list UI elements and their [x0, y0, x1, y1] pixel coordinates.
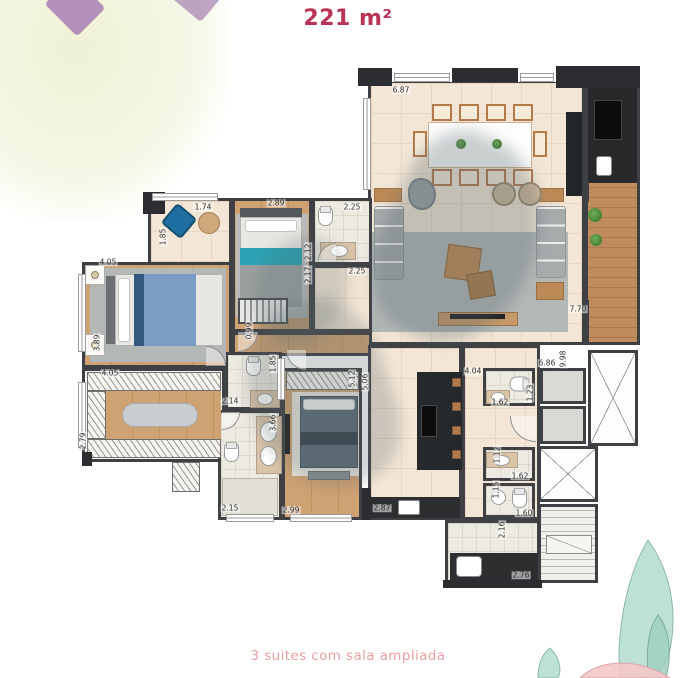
- dimension-label: 5.12: [348, 370, 356, 389]
- dimension-label: 2.16: [498, 521, 506, 540]
- pillar: [358, 68, 392, 86]
- dimension-label: 6.87: [392, 86, 411, 94]
- dimension-label: 7.70: [569, 305, 588, 313]
- window: [520, 73, 554, 82]
- bed2-headboard: [240, 208, 302, 217]
- dining-chair: [432, 169, 452, 186]
- bed2-teal-runner: [240, 248, 302, 265]
- elevator-lobby-2: [540, 406, 586, 444]
- dimension-label: 4.05: [101, 369, 120, 377]
- dimension-label: 2.12: [304, 243, 312, 262]
- shaft: [588, 350, 638, 446]
- island-stool: [452, 378, 461, 387]
- pillar: [452, 68, 518, 82]
- dimension-label: 2.14: [221, 397, 240, 405]
- dining-chair: [459, 169, 479, 186]
- island-stool: [452, 450, 461, 459]
- dining-chair: [432, 104, 452, 121]
- closet-hangers-bottom: [87, 439, 221, 458]
- window: [226, 514, 274, 522]
- window: [277, 358, 285, 400]
- hatched-duct: [172, 462, 200, 492]
- master-bed-pillows: [118, 278, 130, 342]
- side-table: [536, 282, 564, 300]
- dimension-label: 0.99: [245, 322, 253, 341]
- suite-bed-pillows: [303, 399, 355, 410]
- toilet: [318, 206, 333, 226]
- pillar: [362, 488, 371, 520]
- dimension-label: 1.85: [159, 228, 167, 247]
- bed2-pillow: [245, 220, 297, 232]
- dimension-label: 5.06: [361, 373, 369, 392]
- dimension-label: 2.17: [304, 266, 312, 285]
- toilet: [224, 442, 239, 462]
- dimension-label: 1.60: [515, 509, 534, 517]
- dining-chair: [413, 131, 427, 157]
- coffee-table: [466, 270, 496, 300]
- lounge-chair: [408, 178, 436, 210]
- dimension-label: 9.98: [559, 350, 567, 369]
- wall-stub: [585, 182, 589, 202]
- grill: [594, 100, 622, 140]
- dimension-label: 2.25: [348, 267, 367, 275]
- dimension-label: 2.25: [343, 203, 362, 211]
- closet-hangers-left: [87, 391, 106, 439]
- armchair: [518, 182, 542, 206]
- island-stool: [452, 426, 461, 435]
- stairs: [538, 504, 598, 583]
- dining-chair: [459, 104, 479, 121]
- page-title: 221 m²: [0, 6, 696, 31]
- sofa-right: [536, 206, 566, 278]
- cooktop: [421, 405, 437, 437]
- dimension-label: 3.89: [93, 334, 101, 353]
- dimension-label: 2.79: [79, 432, 87, 451]
- dimension-label: 3.66: [269, 414, 277, 433]
- dimension-label: 2.87: [373, 504, 392, 512]
- pillar: [556, 66, 640, 88]
- window: [394, 73, 450, 82]
- pillar: [443, 580, 542, 588]
- kitchen-sink: [398, 500, 420, 515]
- dimension-label: 2.15: [221, 504, 240, 512]
- dining-chair: [486, 104, 506, 121]
- dining-chair: [513, 104, 533, 121]
- balcony-plant: [588, 208, 602, 222]
- dimension-label: 4.04: [464, 367, 483, 375]
- master-bed-headboard: [106, 276, 115, 344]
- tv: [450, 314, 505, 319]
- dimension-label: 6.86: [538, 359, 557, 367]
- table-plant: [456, 139, 466, 149]
- sofa-left: [374, 206, 404, 280]
- floor-plan-page: 221 m² 3 suites com sala ampliada: [0, 0, 696, 678]
- closet-rug: [122, 403, 198, 427]
- dimension-label: 1.23: [526, 384, 534, 403]
- dimension-label: 2.99: [282, 506, 301, 514]
- sink: [260, 446, 277, 466]
- laundry-sink: [456, 556, 482, 577]
- grill-sink: [596, 156, 612, 176]
- page-caption: 3 suites com sala ampliada: [0, 648, 696, 664]
- dimension-label: 1.12: [493, 446, 501, 465]
- dimension-label: 1.15: [492, 481, 500, 500]
- balcony-plant: [590, 234, 602, 246]
- dimension-label: 4.05: [99, 258, 118, 266]
- dimension-label: 1.62: [491, 398, 510, 406]
- suite-bed-throw: [300, 432, 358, 445]
- nightstand-lamp: [91, 271, 99, 279]
- side-table: [374, 188, 402, 202]
- door-arc: [286, 350, 306, 370]
- toilet: [512, 488, 527, 508]
- island-stool: [452, 402, 461, 411]
- window: [152, 193, 218, 201]
- elevator: [538, 446, 598, 502]
- dimension-label: 2.76: [512, 571, 531, 579]
- dimension-label: 1.62: [511, 472, 530, 480]
- crib: [238, 298, 288, 324]
- pillar: [82, 452, 92, 466]
- table-plant: [492, 139, 502, 149]
- dining-chair: [533, 131, 547, 157]
- nook-table: [198, 212, 220, 234]
- elevator-lobby-1: [540, 368, 586, 404]
- window: [290, 514, 352, 522]
- master-bed-blanket: [134, 274, 196, 346]
- tv-panel: [566, 112, 582, 196]
- watercolor-top-left: [0, 0, 230, 220]
- armchair: [492, 182, 516, 206]
- window: [363, 98, 371, 190]
- window: [78, 274, 86, 352]
- stairs-landing: [546, 535, 591, 555]
- dimension-label: 1.85: [269, 355, 277, 374]
- sink: [257, 393, 273, 405]
- toilet: [246, 356, 261, 376]
- suite-bench: [308, 471, 350, 480]
- dining-table: [428, 122, 532, 168]
- dimension-label: 1.74: [194, 203, 213, 211]
- dimension-label: 2.89: [267, 199, 286, 207]
- suite-tv: [285, 414, 290, 454]
